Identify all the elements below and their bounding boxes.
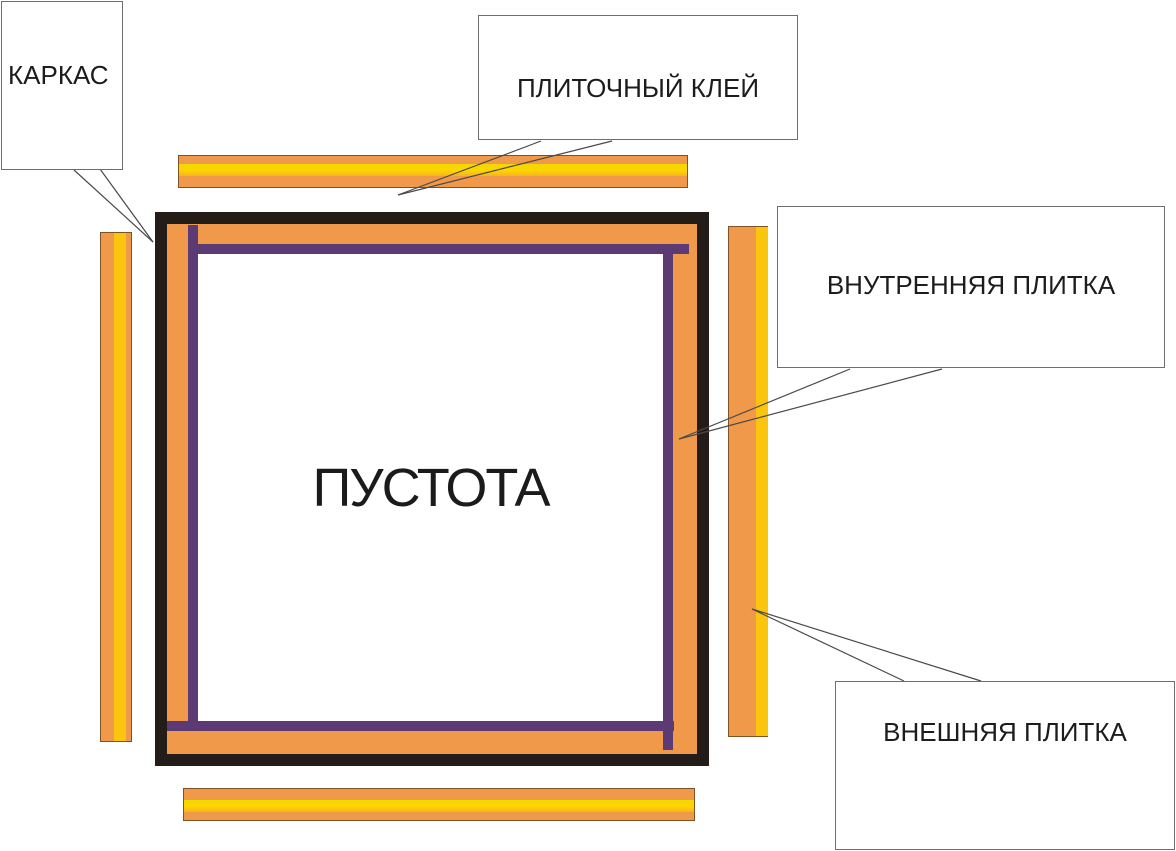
diagram-canvas: ПУСТОТА КАРКАС ПЛИТОЧНЫЙ КЛЕЙ ВНУТР [0,0,1176,851]
inner-tile-bottom-strip [167,721,674,731]
void-area: ПУСТОТА [198,254,663,721]
outer-tile-callout-leader [752,609,981,681]
outer-tile-right-bar [728,226,768,737]
adhesive-stripe-bottom [184,800,694,812]
adhesive-stripe-right [756,227,768,736]
inner-tile-top-strip [188,244,689,254]
adhesive-callout-box: ПЛИТОЧНЫЙ КЛЕЙ [478,15,798,140]
inner-tile-left-strip [188,225,198,731]
outer-tile-bottom-bar [183,788,695,821]
outer-tile-top-bar [178,155,688,188]
adhesive-callout-label: ПЛИТОЧНЫЙ КЛЕЙ [517,73,759,103]
inner-tile-callout-label: ВНУТРЕННЯЯ ПЛИТКА [827,270,1115,300]
outer-tile-left-bar [100,232,132,742]
frame-callout-box: КАРКАС [1,1,123,170]
adhesive-stripe-top [179,164,687,176]
inner-tile-callout-box: ВНУТРЕННЯЯ ПЛИТКА [777,206,1165,368]
inner-tile-callout-leader [679,369,942,439]
adhesive-stripe-left [114,233,126,741]
outer-tile-callout-box: ВНЕШНЯЯ ПЛИТКА [835,681,1175,850]
inner-tile-right-strip [663,244,673,750]
frame-callout-label: КАРКАС [8,60,109,90]
void-label: ПУСТОТА [312,457,548,519]
frame-square: ПУСТОТА [155,212,709,766]
outer-tile-callout-label: ВНЕШНЯЯ ПЛИТКА [883,717,1127,747]
